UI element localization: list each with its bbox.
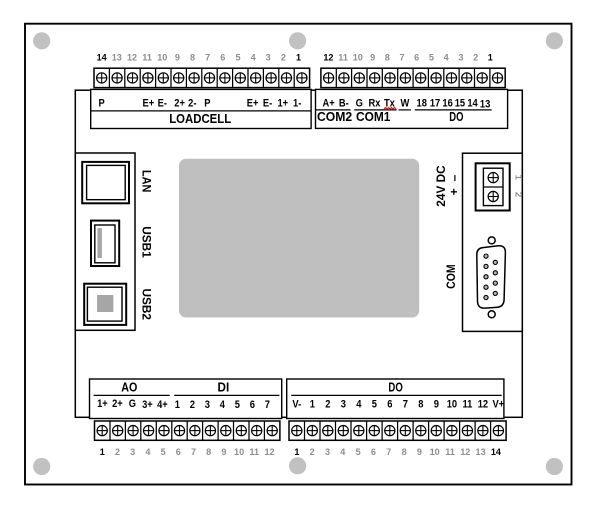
svg-text:V-: V-: [292, 399, 301, 411]
svg-text:2: 2: [310, 447, 315, 457]
svg-text:USB1: USB1: [139, 226, 153, 258]
svg-text:11: 11: [142, 52, 152, 62]
svg-text:COM2: COM2: [317, 109, 352, 124]
svg-text:5: 5: [161, 447, 166, 457]
svg-text:DO: DO: [388, 379, 402, 394]
svg-text:1+: 1+: [97, 398, 108, 410]
svg-text:3: 3: [458, 52, 463, 62]
svg-text:2: 2: [190, 399, 195, 411]
svg-text:P: P: [98, 98, 104, 110]
svg-text:E+: E+: [247, 98, 259, 110]
svg-text:7: 7: [399, 52, 404, 62]
svg-text:18: 18: [417, 98, 428, 110]
svg-text:7: 7: [205, 52, 210, 62]
svg-text:1: 1: [488, 52, 493, 62]
svg-text:10: 10: [353, 52, 363, 62]
svg-text:E+: E+: [143, 98, 155, 110]
svg-text:12: 12: [323, 52, 333, 62]
svg-text:6: 6: [414, 52, 419, 62]
svg-text:8: 8: [402, 447, 407, 457]
svg-text:11: 11: [249, 447, 259, 457]
svg-text:3: 3: [205, 399, 210, 411]
svg-text:9: 9: [221, 447, 226, 457]
svg-text:+ –: + –: [447, 174, 461, 195]
svg-text:2: 2: [281, 52, 286, 62]
svg-text:1: 1: [513, 175, 524, 181]
svg-text:2-: 2-: [188, 98, 197, 110]
svg-text:5: 5: [235, 52, 240, 62]
svg-text:9: 9: [417, 447, 422, 457]
svg-text:5: 5: [235, 399, 240, 411]
svg-text:2: 2: [115, 447, 120, 457]
svg-text:9: 9: [434, 399, 439, 411]
svg-text:14: 14: [97, 52, 108, 62]
svg-text:3: 3: [341, 399, 346, 411]
svg-text:12: 12: [460, 447, 470, 457]
svg-text:13: 13: [112, 52, 122, 62]
svg-text:13: 13: [476, 447, 486, 457]
svg-text:2+: 2+: [112, 398, 123, 410]
svg-text:4: 4: [220, 399, 225, 411]
svg-text:8: 8: [418, 399, 423, 411]
svg-text:6: 6: [250, 399, 255, 411]
svg-text:E-: E-: [263, 98, 273, 110]
svg-text:13: 13: [480, 99, 491, 111]
svg-text:5: 5: [429, 52, 434, 62]
svg-text:2: 2: [513, 192, 524, 197]
svg-text:1-: 1-: [293, 98, 302, 110]
svg-text:6: 6: [371, 447, 376, 457]
svg-text:1: 1: [294, 447, 299, 457]
svg-text:8: 8: [190, 52, 195, 62]
svg-text:1: 1: [310, 399, 315, 411]
svg-text:7: 7: [386, 447, 391, 457]
svg-text:3: 3: [325, 447, 330, 457]
svg-text:V+: V+: [493, 399, 505, 411]
svg-text:P: P: [204, 98, 210, 110]
svg-text:11: 11: [445, 447, 455, 457]
svg-text:2+: 2+: [174, 98, 185, 110]
svg-text:DI: DI: [218, 379, 230, 394]
svg-text:W: W: [400, 98, 409, 110]
svg-text:2: 2: [473, 52, 478, 62]
svg-text:1: 1: [100, 447, 105, 457]
svg-text:14: 14: [467, 98, 478, 110]
svg-text:5: 5: [372, 399, 377, 411]
svg-text:6: 6: [387, 399, 392, 411]
svg-text:AO: AO: [121, 379, 137, 394]
svg-text:12: 12: [264, 447, 274, 457]
svg-text:G: G: [129, 398, 136, 410]
svg-text:3: 3: [130, 447, 135, 457]
svg-text:1+: 1+: [277, 98, 288, 110]
svg-text:LOADCELL: LOADCELL: [169, 111, 231, 126]
svg-text:9: 9: [175, 52, 180, 62]
svg-text:12: 12: [127, 52, 137, 62]
svg-text:DO: DO: [449, 109, 463, 124]
svg-text:7: 7: [191, 447, 196, 457]
svg-text:3: 3: [266, 52, 271, 62]
svg-text:10: 10: [234, 447, 244, 457]
svg-text:1: 1: [175, 399, 180, 411]
svg-text:9: 9: [370, 52, 375, 62]
svg-text:11: 11: [338, 52, 348, 62]
svg-text:5: 5: [356, 447, 361, 457]
svg-text:12: 12: [478, 399, 489, 411]
svg-text:3+: 3+: [142, 399, 153, 411]
svg-text:10: 10: [157, 52, 167, 62]
svg-text:10: 10: [447, 399, 458, 411]
svg-text:2: 2: [325, 399, 330, 411]
svg-text:8: 8: [385, 52, 390, 62]
svg-text:USB2: USB2: [139, 288, 153, 320]
svg-text:7: 7: [403, 399, 408, 411]
svg-text:10: 10: [430, 447, 440, 457]
svg-text:4: 4: [356, 399, 361, 411]
svg-text:LAN: LAN: [139, 170, 153, 193]
svg-text:11: 11: [462, 399, 472, 411]
svg-text:4+: 4+: [157, 399, 168, 411]
svg-text:6: 6: [220, 52, 225, 62]
svg-text:1: 1: [296, 52, 301, 62]
svg-text:6: 6: [176, 447, 181, 457]
svg-text:E-: E-: [158, 98, 168, 110]
svg-text:COM1: COM1: [356, 109, 390, 124]
svg-text:7: 7: [265, 399, 270, 411]
svg-text:8: 8: [206, 447, 211, 457]
svg-text:COM: COM: [445, 264, 458, 288]
svg-text:14: 14: [491, 447, 502, 457]
svg-text:17: 17: [430, 98, 441, 110]
